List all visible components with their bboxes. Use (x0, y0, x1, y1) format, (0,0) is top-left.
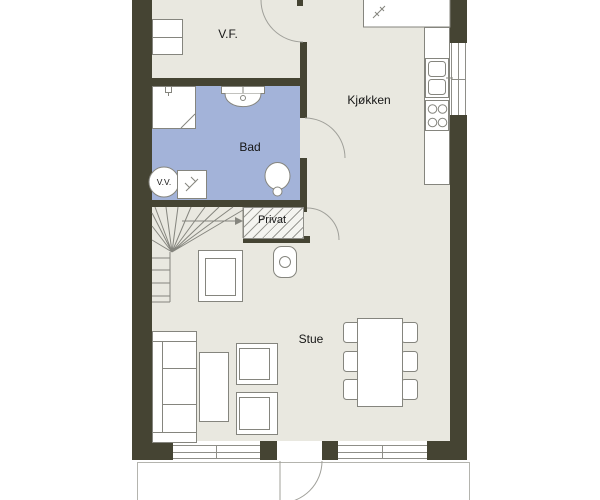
wardrobe (153, 20, 183, 55)
dining-table (358, 319, 403, 407)
room-label-vf: V.F. (218, 27, 238, 41)
bathroom-door-arc (305, 118, 345, 158)
bathroom-sink (222, 86, 265, 107)
armchair-top (237, 344, 278, 385)
armchair-by-stairs (199, 251, 243, 302)
washing-machine (178, 171, 207, 199)
room-label-bad: Bad (239, 140, 260, 154)
privat-door-arc (307, 208, 339, 240)
armchair-bottom (237, 393, 278, 435)
stove (426, 101, 449, 131)
coffee-table (200, 353, 229, 422)
stairs-direction-arrow (182, 217, 243, 225)
room-label-stue: Stue (299, 332, 324, 346)
room-label-vv: V.V. (157, 177, 172, 187)
side-table (274, 247, 297, 278)
patio-door (280, 461, 322, 500)
toilet (265, 163, 290, 197)
kitchen-sink (426, 59, 454, 98)
room-label-kjokken: Kjøkken (347, 93, 390, 107)
room-label-privat: Privat (258, 214, 286, 226)
plan-linework (0, 0, 600, 500)
entrance-door-arc (261, 0, 303, 42)
floor-plan: V.F. Kjøkken Bad V.V. Privat Stue (0, 0, 600, 500)
sofa (153, 332, 197, 443)
shower (153, 87, 196, 129)
